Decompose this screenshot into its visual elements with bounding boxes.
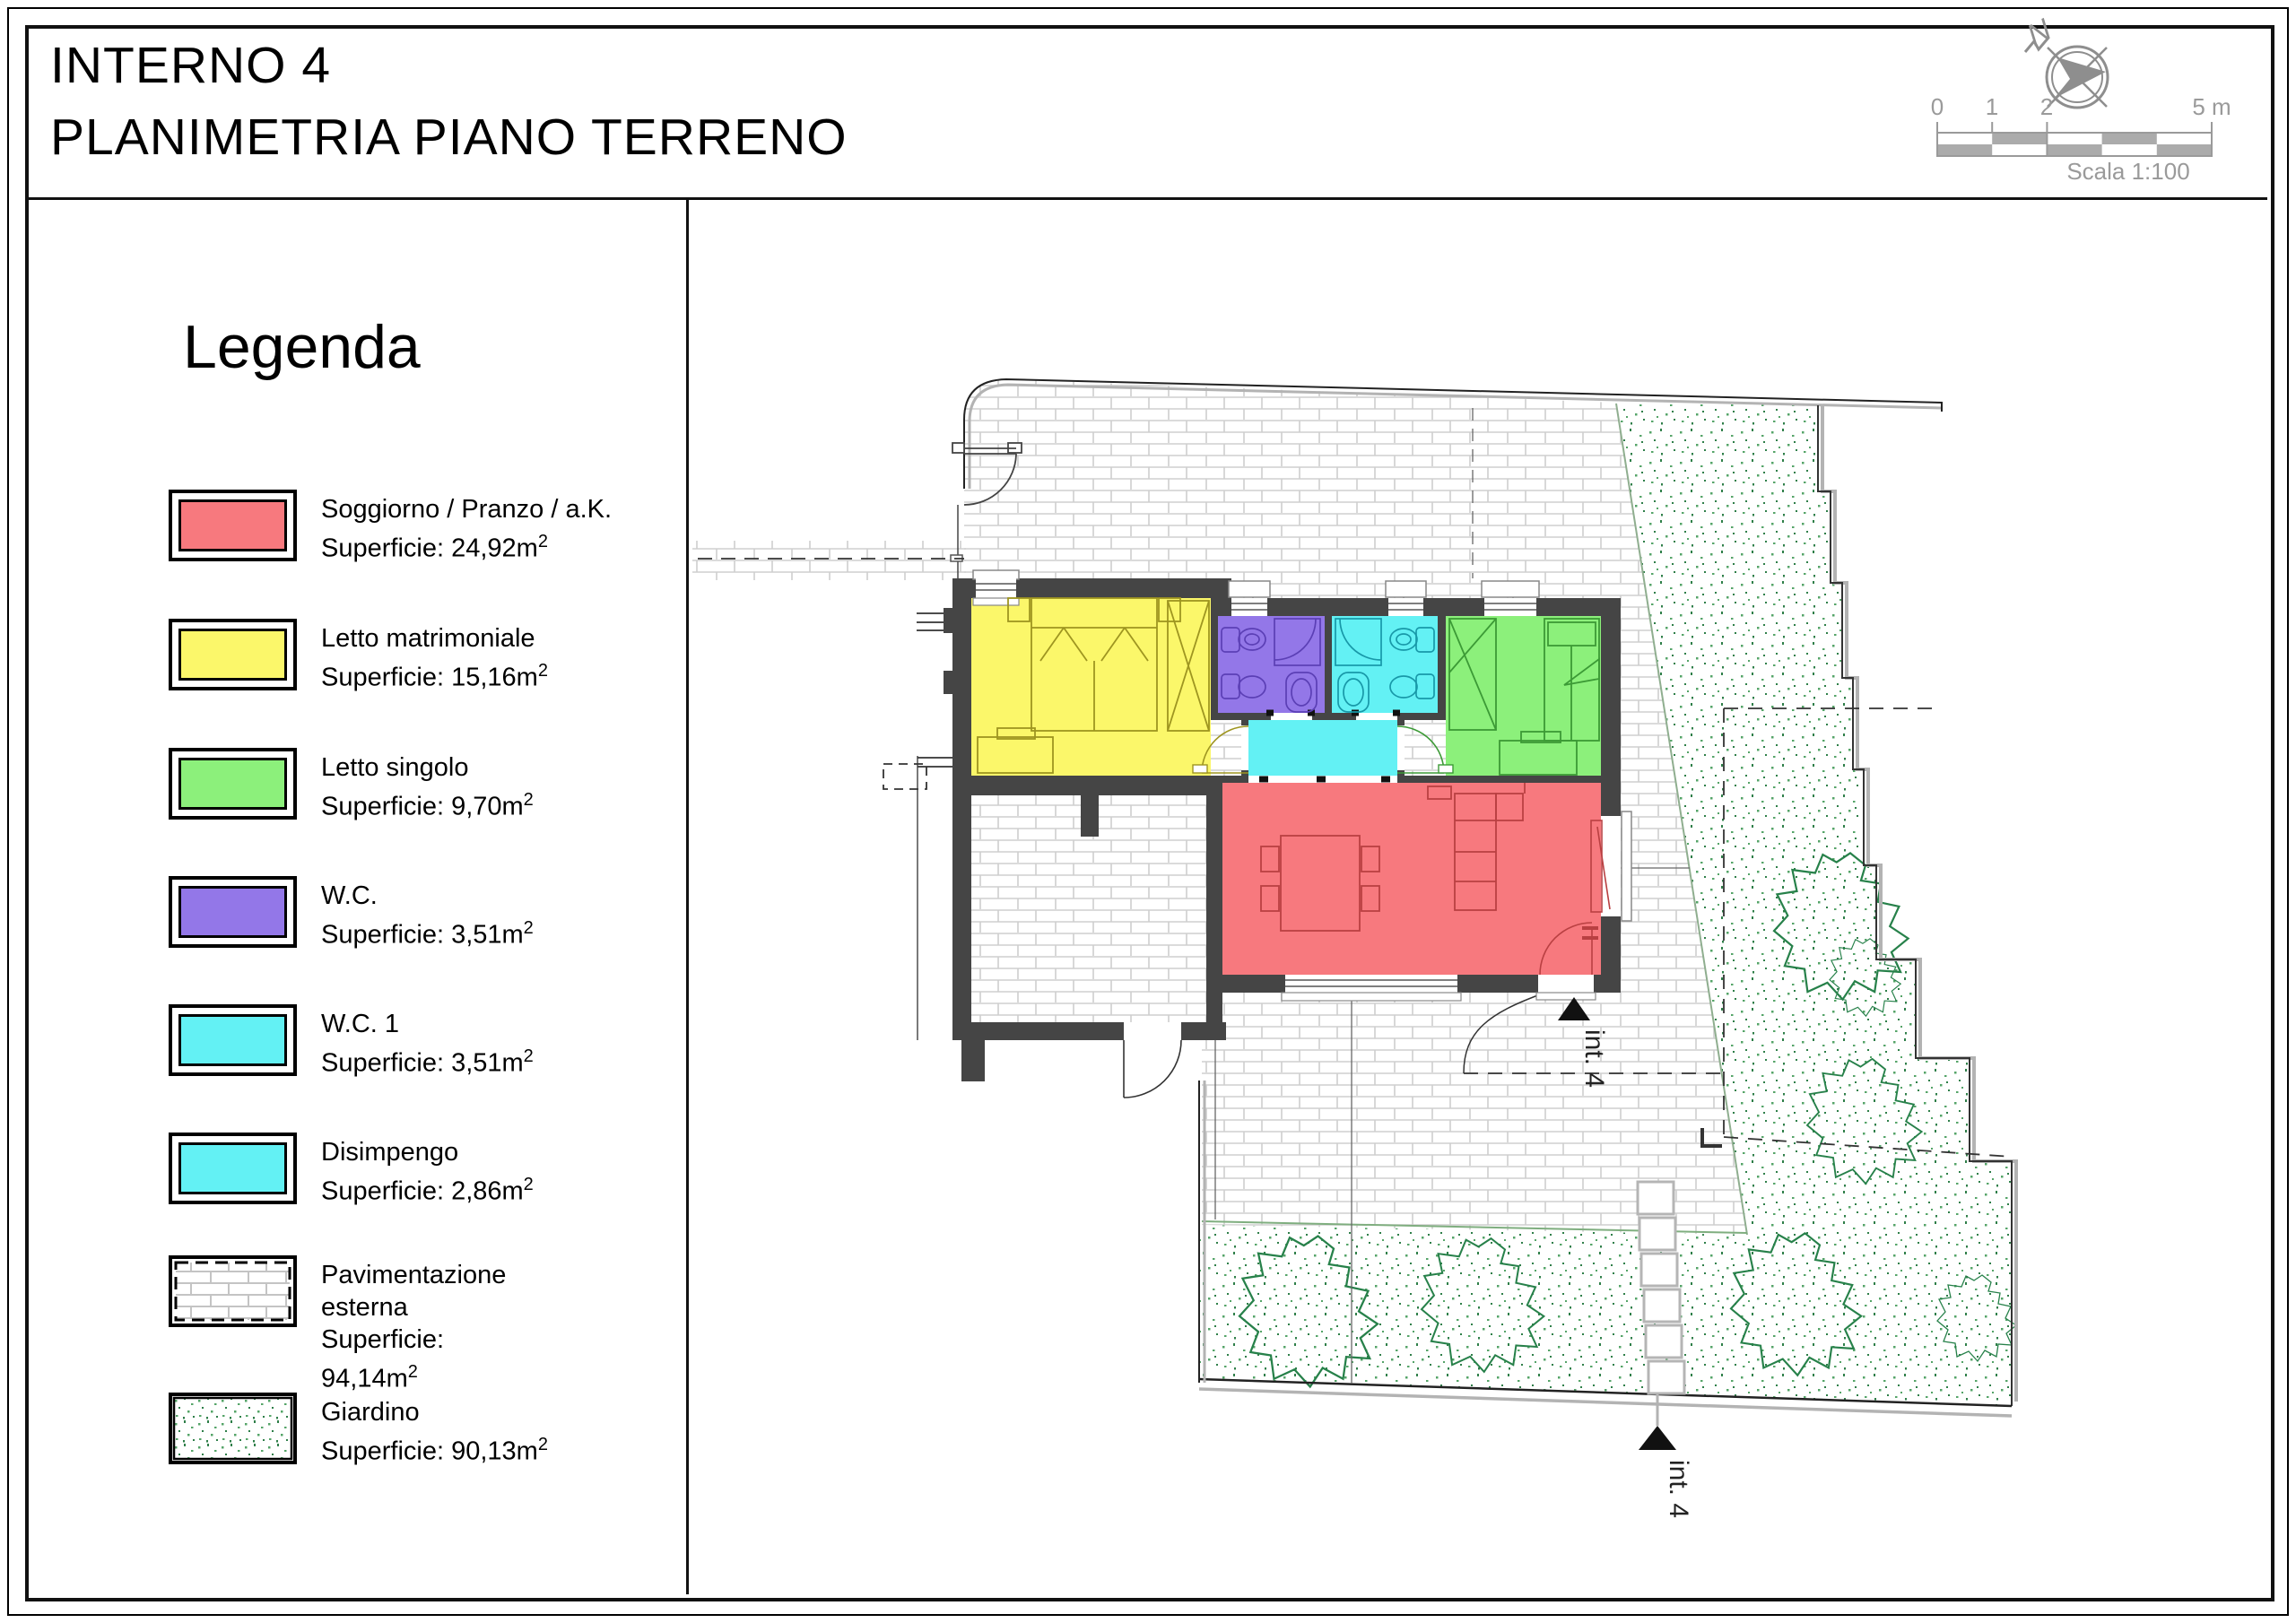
legend-swatch-wc (169, 876, 297, 948)
legend-swatch-disimpengo (169, 1133, 297, 1204)
svg-text:1: 1 (1986, 93, 1998, 120)
legend-label: Pavimentazione esterna Superficie: 94,14… (321, 1259, 545, 1395)
legend-swatch-soggiorno (169, 490, 297, 561)
legend-label: W.C. 1 Superficie: 3,51m2 (321, 1008, 707, 1080)
legend-label: Letto matrimoniale Superficie: 15,16m2 (321, 622, 707, 694)
legend-label: Giardino Superficie: 90,13m2 (321, 1396, 707, 1468)
legend-label: Letto singolo Superficie: 9,70m2 (321, 751, 707, 823)
legend-label: Soggiorno / Pranzo / a.K. Superficie: 24… (321, 493, 707, 565)
legend-heading: Legenda (183, 312, 421, 382)
north-compass-icon: N (2022, 13, 2108, 108)
sheet-title: INTERNO 4 (50, 36, 331, 95)
title-separator (27, 197, 2267, 200)
sheet: int. 4 int. 4 INTERNO 4 PLANIMETRIA PIAN… (0, 0, 2296, 1623)
sheet-subtitle: PLANIMETRIA PIANO TERRENO (50, 108, 848, 167)
legend-swatch-pavimentazione (169, 1255, 297, 1327)
legend-swatch-letto-matrimoniale (169, 619, 297, 690)
legend-swatch-wc-1 (169, 1004, 297, 1076)
svg-text:5 m: 5 m (2192, 93, 2231, 120)
legend-swatch-giardino (169, 1393, 297, 1464)
compass-and-scale: N 0 1 2 5 m Scala 1:100 (1910, 13, 2287, 192)
svg-text:2: 2 (2040, 93, 2053, 120)
legend-label: Disimpengo Superficie: 2,86m2 (321, 1136, 707, 1208)
legend-label: W.C. Superficie: 3,51m2 (321, 880, 707, 951)
svg-text:0: 0 (1931, 93, 1944, 120)
legend-swatch-letto-singolo (169, 748, 297, 820)
scale-caption: Scala 1:100 (2066, 158, 2189, 185)
